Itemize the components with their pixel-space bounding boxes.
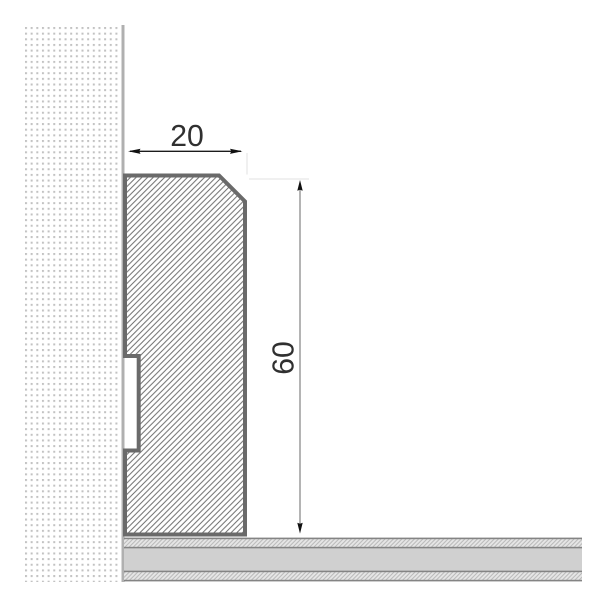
svg-text:60: 60 (267, 341, 300, 375)
svg-text:20: 20 (170, 120, 204, 153)
